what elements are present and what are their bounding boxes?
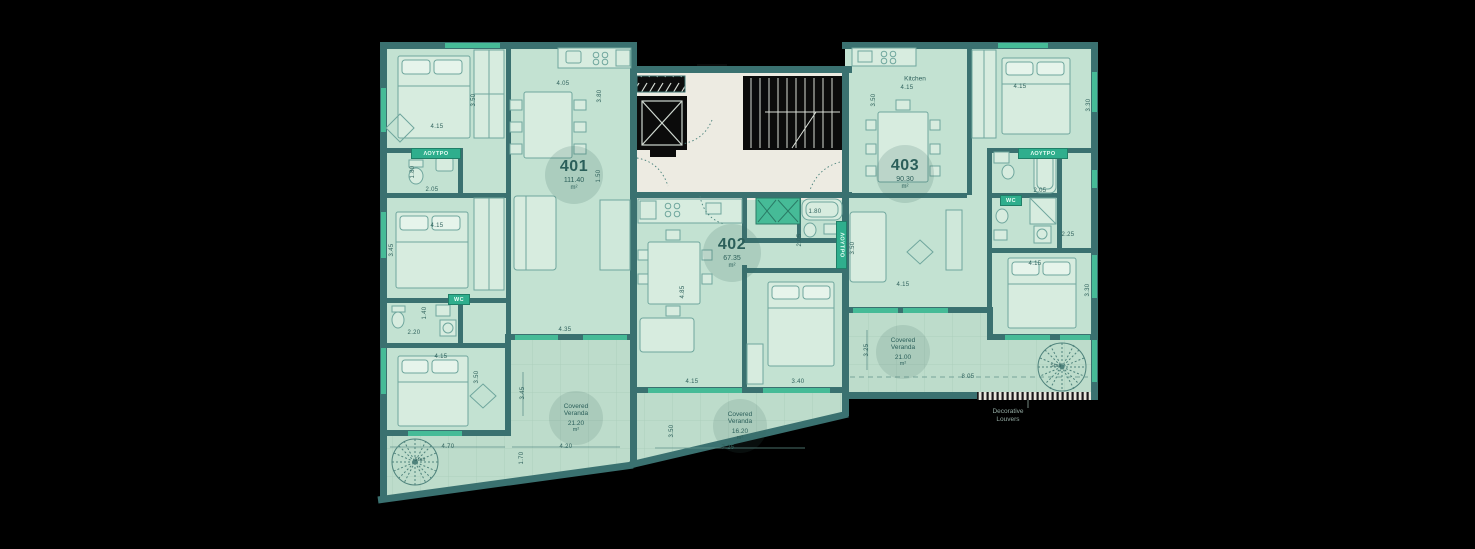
floor-plan-drawing	[0, 0, 1475, 549]
dining-table	[878, 112, 928, 182]
tv-cabinet	[946, 210, 962, 270]
toilet	[392, 312, 404, 328]
fridge	[616, 50, 630, 66]
wardrobe	[747, 344, 763, 384]
core-louver-strip	[637, 76, 685, 92]
toilet	[996, 209, 1008, 223]
sink	[436, 158, 453, 171]
dining-table	[648, 242, 700, 304]
sink	[706, 203, 721, 214]
staircase	[743, 76, 843, 150]
sink	[994, 152, 1009, 163]
elevator-shaft	[637, 96, 687, 157]
sink	[566, 51, 581, 63]
shower	[756, 198, 800, 224]
fridge	[640, 201, 656, 219]
sink	[994, 230, 1007, 240]
sofa	[850, 212, 886, 282]
decorative-louvers-strip	[977, 392, 1091, 400]
toilet	[1002, 165, 1014, 179]
floor-plan: 401 111.40 m² 402 67.35 m² 403 90.30 m² …	[0, 0, 1475, 549]
toilet	[409, 168, 423, 184]
sink	[858, 51, 872, 62]
toilet	[804, 223, 816, 237]
sofa	[640, 318, 694, 352]
washer	[440, 320, 456, 336]
sofa	[514, 196, 556, 270]
sink	[824, 224, 837, 234]
tv-cabinet	[600, 200, 630, 270]
dining-table	[524, 92, 572, 158]
sink	[436, 305, 450, 316]
